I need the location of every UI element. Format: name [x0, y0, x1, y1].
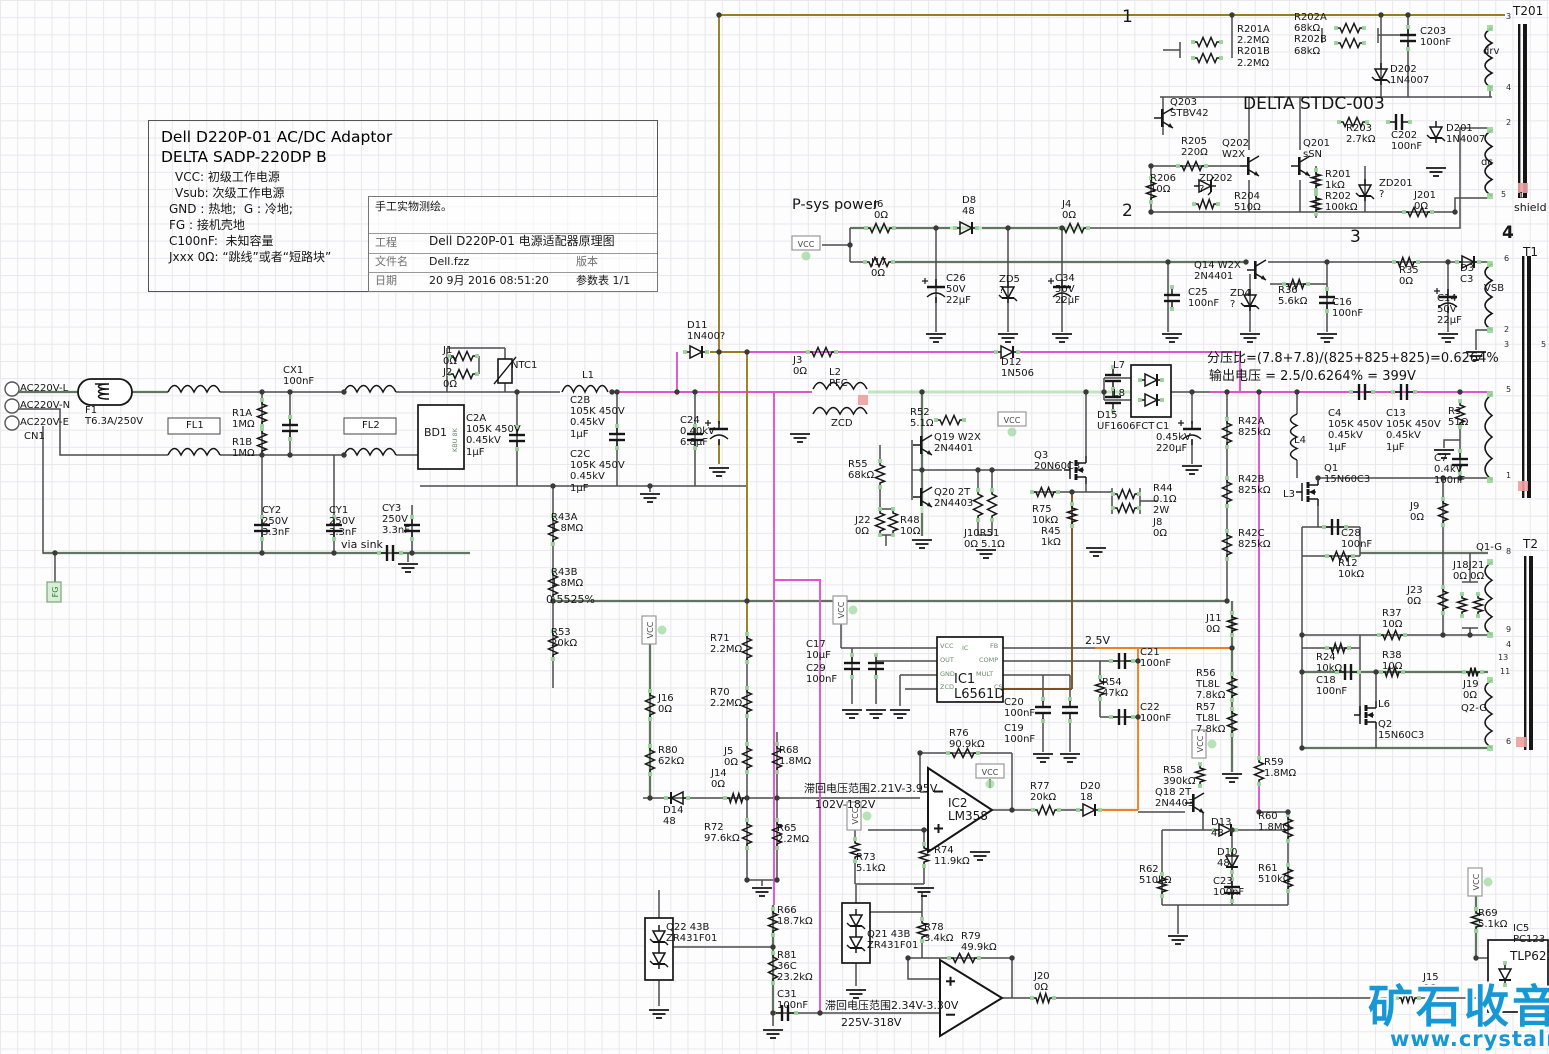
rh-symbol — [934, 416, 966, 425]
cv-symbol — [1035, 697, 1051, 723]
component-label: 4 — [1506, 84, 1511, 93]
component-label: R73 5.1kΩ — [856, 852, 885, 874]
component-label: C19 100nF — [1004, 723, 1035, 745]
component-label: COMP — [979, 657, 998, 664]
junction-dot — [409, 550, 414, 555]
component-label: CN1 — [24, 431, 45, 442]
component-label: 滞回电压范围2.21V-3.95V — [804, 783, 937, 795]
component-label: J11 0Ω — [1206, 613, 1222, 635]
component-label: P-sys power — [792, 197, 879, 213]
junction-dot — [1467, 632, 1472, 637]
junction-dot — [1373, 669, 1378, 674]
component-label: R206 10Ω — [1150, 173, 1176, 195]
component-label: R48 10Ω — [900, 515, 920, 537]
gnd-symbol — [914, 888, 934, 896]
component-label: D12 1N506 — [1001, 357, 1034, 379]
gnd-symbol — [1426, 168, 1446, 176]
component-label: CY1 250V 3.3nF — [329, 505, 357, 539]
component-label: C7 0.4kV 100nF — [1434, 453, 1465, 487]
junction-dot — [1243, 259, 1248, 264]
pin-pad — [1487, 193, 1493, 199]
component-label: VCC — [940, 643, 954, 650]
gnd-symbol — [912, 540, 932, 548]
component-label: 3 — [1350, 228, 1361, 247]
component-label: ZCD — [940, 684, 954, 691]
component-label: 9 — [1506, 626, 1511, 635]
pin-pad — [1487, 391, 1493, 397]
component-label: 13 — [1498, 654, 1508, 663]
component-label: R43A 1.8MΩ — [551, 512, 583, 534]
component-label: C13 105K 450V 0.45kV 1µF — [1386, 408, 1441, 453]
component-label: D20 18 — [1080, 781, 1100, 803]
rh-symbol — [1191, 54, 1223, 63]
circ-symbol — [5, 382, 19, 396]
info-note: GND : 热地; G : 冷地; — [169, 203, 293, 216]
junction-dot — [1445, 259, 1450, 264]
junction-dot — [933, 225, 938, 230]
component-label: J6 0Ω — [874, 199, 888, 221]
project-value: Dell D220P-01 电源适配器原理图 — [429, 235, 615, 248]
component-label: Q21 43B ZR431F01 — [867, 929, 918, 951]
component-label: 2 — [1506, 119, 1511, 128]
rv-symbol — [974, 488, 983, 522]
junction-dot — [744, 795, 749, 800]
npn-symbol — [913, 487, 932, 507]
title-block: 手工实物测绘。 工程 Dell D220P-01 电源适配器原理图 文件名 De… — [368, 196, 658, 292]
component-label: R58 390kΩ — [1163, 765, 1196, 787]
vccr-symbol: VCC — [642, 616, 667, 644]
component-label: 滞回电压范围2.34V-3.30V — [825, 1000, 958, 1012]
rv-symbol — [1196, 762, 1205, 788]
coilv-symbol — [1485, 394, 1492, 480]
schematic-page: VCCFGVCCVCCVCCVCCVCCVCCVCC Dell D220P-01… — [0, 0, 1549, 1054]
svg-text:VCC: VCC — [837, 601, 846, 618]
component-label: L1 — [582, 370, 594, 381]
component-label: 3 — [1506, 13, 1511, 22]
component-label: R81 36C 23.2kΩ — [777, 950, 813, 984]
vcc-symbol: VCC — [998, 412, 1026, 437]
fet-symbol — [1354, 701, 1376, 729]
component-label: Q20 2T 2N4403 — [934, 487, 973, 509]
watermark-brand: 矿石收音机 — [1368, 982, 1549, 1032]
junction-dot — [1224, 598, 1229, 603]
component-label: C2C 105K 450V 0.45kV 1µF — [570, 449, 625, 494]
junction-dot — [1101, 389, 1106, 394]
component-label: C20 100nF — [1004, 697, 1035, 719]
component-label: J201 0Ω — [1414, 190, 1436, 212]
gnd-symbol — [1438, 334, 1458, 342]
component-label: R203 2.7kΩ — [1346, 123, 1375, 145]
component-label: R62 510kΩ — [1139, 864, 1172, 886]
opamp-symbol — [940, 960, 1002, 1036]
rh-symbol — [1191, 38, 1223, 47]
component-label: J4 0Ω — [1062, 199, 1076, 221]
rh-symbol — [1334, 39, 1366, 48]
component-label: D202 1N4007 — [1390, 64, 1429, 86]
component-label: Q203 STBV42 — [1170, 97, 1209, 119]
junction-dot — [847, 242, 852, 247]
component-label: R205 220Ω — [1181, 136, 1208, 158]
vcc-symbol: VCC — [792, 236, 820, 261]
gnd-symbol — [1162, 334, 1182, 342]
fgb-symbol: FG — [47, 582, 61, 602]
component-label: Q201 sSN — [1303, 138, 1330, 160]
component-label: Q2 15N60C3 — [1378, 719, 1424, 741]
component-label: D3 C3 — [1460, 263, 1474, 285]
gnd-symbol — [1317, 334, 1337, 342]
component-label: ZCD — [831, 418, 853, 429]
reds-symbol — [1516, 737, 1526, 747]
component-label: R77 20kΩ — [1030, 781, 1056, 803]
component-label: Q202 W2X — [1222, 138, 1249, 160]
junction-dot — [1165, 259, 1170, 264]
junction-dot — [259, 389, 264, 394]
svg-text:VCC: VCC — [646, 621, 655, 638]
component-label: 5 — [1541, 341, 1546, 350]
component-label: R201 1kΩ — [1325, 169, 1351, 191]
date-label: 日期 — [375, 275, 397, 287]
pin-pad — [1487, 85, 1493, 91]
component-label: R12 10kΩ — [1338, 558, 1364, 580]
component-label: R202 100kΩ — [1325, 191, 1358, 213]
component-label: R204 510Ω — [1234, 191, 1261, 213]
junction-dot — [1229, 645, 1234, 650]
component-label: J16 0Ω — [658, 693, 674, 715]
junction-dot — [1148, 163, 1153, 168]
component-label: R53 20kΩ — [551, 627, 577, 649]
svg-text:VCC: VCC — [798, 240, 815, 249]
component-label: C1 0.45kV 220µF — [1156, 421, 1191, 455]
junction-dot — [259, 452, 264, 457]
junction-dot — [774, 877, 779, 882]
component-label: drv — [1483, 46, 1499, 57]
component-label: T1 — [1523, 246, 1538, 259]
component-label: T2 — [1523, 538, 1538, 551]
component-label: R45 1kΩ — [1041, 526, 1061, 548]
component-label: J14 0Ω — [711, 768, 727, 790]
component-label: 11 — [1500, 668, 1510, 677]
component-label: R201A 2.2MΩ R201B 2.2MΩ — [1237, 24, 1270, 69]
component-label: R60 1.8MΩ — [1258, 811, 1290, 833]
info-title-1: Dell D220P-01 AC/DC Adaptor — [161, 129, 392, 146]
component-label: IC5 PC123 — [1513, 923, 1545, 945]
title-block-note: 手工实物测绘。 — [375, 201, 452, 213]
gnd-symbol — [649, 1010, 669, 1018]
component-label: R66 18.7kΩ — [777, 905, 813, 927]
component-label: R71 2.2MΩ — [710, 633, 742, 655]
info-note: VCC: 初级工作电源 — [175, 171, 280, 184]
component-label: 2.5V — [1085, 635, 1110, 647]
info-note: FG : 接机壳地 — [169, 219, 245, 232]
component-label: C26 50V 22µF — [946, 273, 971, 307]
ch-symbol — [1386, 114, 1412, 130]
coilv-symbol — [1485, 562, 1492, 635]
component-label: R78 3.4kΩ — [924, 922, 953, 944]
pin-pad — [1487, 677, 1493, 683]
info-title-2: DELTA SADP-220DP B — [161, 149, 327, 166]
info-note: Jxxx 0Ω: “跳线”或者“短路块” — [169, 251, 331, 264]
pin-pad — [1487, 127, 1493, 133]
pin-pad — [1487, 745, 1493, 751]
gnd-symbol — [640, 494, 660, 502]
component-label: 分压比=(7.8+7.8)/(825+825+825)=0.6264% — [1207, 352, 1499, 367]
wire — [908, 958, 940, 979]
file-label: 文件名 — [375, 256, 408, 268]
component-label: 225V-318V — [841, 1017, 901, 1029]
watermark-url: www.crystalradio.cn — [1390, 1028, 1549, 1052]
component-label: R79 49.9kΩ — [961, 931, 997, 953]
component-label: C29 100nF — [806, 663, 837, 685]
component-label: 4 — [1502, 224, 1514, 243]
pin-pad — [1487, 261, 1493, 267]
junction-dot — [1299, 745, 1304, 750]
component-label: C21 100nF — [1140, 647, 1171, 669]
reds-symbol — [858, 395, 868, 405]
indh-symbol — [562, 386, 608, 393]
component-label: R42B 825kΩ — [1238, 474, 1271, 496]
gnd-symbol — [1222, 774, 1242, 782]
indh-symbol — [168, 386, 220, 393]
reds-symbol — [1518, 481, 1528, 491]
component-label: IC2 LM358 — [948, 797, 988, 824]
svg-text:VCC: VCC — [1196, 735, 1205, 752]
component-label: Q18 2T 2N4403 — [1155, 787, 1194, 809]
component-label: ZD5 ? — [999, 274, 1020, 296]
component-label: R69 5.1kΩ — [1478, 908, 1507, 930]
date-value: 20 9月 2016 08:51:20 — [429, 275, 549, 287]
project-label: 工程 — [375, 237, 397, 249]
component-label: D14 48 — [663, 805, 683, 827]
component-label: 2 — [1122, 202, 1133, 221]
component-label: AC220V-L — [20, 383, 68, 394]
gnd-symbol — [970, 852, 990, 860]
gnd-symbol — [1168, 936, 1188, 944]
gnd-symbol — [1052, 334, 1072, 342]
component-label: 5 — [1501, 191, 1506, 200]
junction-dot — [514, 389, 519, 394]
gnd-symbol — [998, 334, 1018, 342]
junction-dot — [919, 467, 924, 472]
component-label: D15 UF1606FCT — [1097, 410, 1154, 432]
junction-dot — [1440, 632, 1445, 637]
component-label: J3 0Ω — [793, 355, 807, 377]
junction-dot — [744, 877, 749, 882]
component-label: 6 — [1504, 255, 1509, 264]
component-label: Q1 15N60C3 — [1324, 463, 1370, 485]
junction-dot — [716, 12, 721, 17]
rh-symbol — [1334, 24, 1366, 33]
component-label: R36 5.6kΩ — [1278, 285, 1307, 307]
component-label: R54 47kΩ — [1102, 677, 1128, 699]
gnd-symbol — [1240, 334, 1260, 342]
component-label: KBU 8K — [452, 428, 459, 452]
component-label: CX1 100nF — [283, 365, 314, 387]
component-label: shield — [1514, 202, 1547, 214]
junction-dot — [1299, 632, 1304, 637]
component-label: AC220V-E — [20, 417, 69, 428]
junction-dot — [921, 827, 926, 832]
component-label: C23 100nF — [1213, 876, 1244, 898]
junction-dot — [1405, 12, 1410, 17]
junction-dot — [1189, 389, 1194, 394]
component-label: C34 50V 22µF — [1055, 273, 1080, 307]
core-symbol — [1518, 24, 1527, 198]
vccr-symbol: VCC — [1468, 868, 1493, 896]
component-label: J17 0Ω — [871, 257, 887, 279]
junction-dot — [1224, 389, 1229, 394]
junction-dot — [716, 349, 721, 354]
junction-dot — [287, 452, 292, 457]
component-label: AC220V-N — [20, 400, 70, 411]
component-label: TLP621 — [1510, 950, 1549, 963]
gnd-symbol — [890, 710, 910, 718]
component-label: R43B 1.8MΩ — [551, 567, 583, 589]
component-label: R202A 68kΩ R202B 68kΩ — [1294, 12, 1327, 57]
junction-dot — [905, 955, 910, 960]
component-label: 1 — [1506, 472, 1511, 481]
indh-symbol — [344, 386, 396, 393]
component-label: L8 — [1113, 388, 1125, 399]
pin-pad — [1487, 25, 1493, 31]
junction-dot — [1005, 225, 1010, 230]
rh-symbol — [1111, 504, 1141, 513]
svg-text:VCC: VCC — [982, 768, 999, 777]
core-symbol — [1524, 556, 1533, 750]
junction-dot — [259, 550, 264, 555]
component-label: R1A 1MΩ — [232, 408, 255, 430]
component-label: L2 PFC — [829, 367, 848, 389]
component-label: R37 10Ω — [1382, 608, 1402, 630]
junction-dot — [647, 483, 652, 488]
junction-dot — [1083, 389, 1088, 394]
junction-dot — [770, 944, 775, 949]
component-label: 输出电压 = 2.5/0.6264% = 399V — [1209, 370, 1416, 385]
component-label: 0.5525% — [546, 594, 595, 606]
component-label: C14 50V 22µF — [1437, 293, 1462, 327]
junction-dot — [1069, 489, 1074, 494]
wire — [1476, 330, 1488, 350]
junction-dot — [917, 750, 922, 755]
pin-pad — [1487, 327, 1493, 333]
component-label: FL1 — [186, 420, 204, 431]
gnd-symbol — [866, 710, 886, 718]
junction-dot — [1473, 955, 1478, 960]
component-label: Q3 20N60C3 — [1034, 450, 1080, 472]
junction-dot — [817, 1010, 822, 1015]
component-label: R70 2.2MΩ — [710, 687, 742, 709]
component-label: J18J21 0Ω 0Ω — [1453, 560, 1484, 582]
rv-symbol — [889, 507, 898, 537]
junction-dot — [341, 452, 346, 457]
gnd-symbol — [1033, 754, 1053, 762]
component-label: R38 10Ω — [1382, 650, 1402, 672]
component-label: D10 48 — [1217, 847, 1237, 869]
component-label: J19 0Ω — [1463, 679, 1479, 701]
component-label: R75 10kΩ — [1032, 504, 1058, 526]
component-label: 2 — [1504, 326, 1509, 335]
component-label: L7 — [1113, 360, 1125, 371]
gnd-symbol — [1060, 754, 1080, 762]
gnd-symbol — [763, 1030, 783, 1038]
component-label: Q22 43B ZR431F01 — [666, 922, 717, 944]
junction-dot — [1315, 475, 1320, 480]
component-label: D13 48 — [1211, 817, 1231, 839]
junction-dot — [341, 389, 346, 394]
component-label: 5 — [1506, 386, 1511, 395]
component-label: R57 TL8L 7.8kΩ — [1196, 702, 1225, 736]
sheet-value: 参数表 1/1 — [576, 275, 630, 287]
component-label: J23 0Ω — [1407, 585, 1423, 607]
rh-symbol — [1031, 806, 1061, 815]
junction-dot — [770, 1010, 775, 1015]
component-label: R76 90.9kΩ — [949, 728, 985, 750]
component-label: C17 10µF — [806, 639, 831, 661]
component-label: ZD4 ? — [1230, 288, 1251, 310]
rv-symbol — [1458, 592, 1467, 618]
circ-symbol — [5, 416, 19, 430]
component-label: R52 5.1Ω — [910, 407, 934, 429]
component-label: T201 — [1513, 5, 1543, 18]
component-label: C24 0.40kV 6.8µF — [680, 415, 715, 449]
component-label: C2B 105K 450V 0.45kV 1µF — [570, 395, 625, 440]
junction-dot — [331, 550, 336, 555]
cv-symbol — [1062, 697, 1078, 723]
gnd-symbol — [1182, 466, 1202, 474]
rh-symbol — [1192, 200, 1220, 209]
gnd-symbol — [1086, 548, 1106, 556]
npn-symbol — [913, 435, 932, 455]
component-label: J1 0Ω J2 0Ω — [443, 345, 457, 390]
component-label: BD1 — [424, 427, 447, 439]
component-label: via sink — [341, 539, 383, 551]
component-label: 1 — [1122, 8, 1133, 27]
coilv-symbol — [1485, 28, 1492, 88]
component-label: Q14 W2X 2N4401 — [1194, 260, 1241, 282]
component-label: R35 0Ω — [1399, 265, 1419, 287]
component-label: C203 100nF — [1420, 26, 1451, 48]
gnd-symbol — [709, 468, 729, 476]
junction-dot — [1457, 389, 1462, 394]
junction-dot — [774, 795, 779, 800]
junction-dot — [1009, 955, 1014, 960]
junction-dot — [1299, 669, 1304, 674]
component-label: J5 0Ω — [724, 746, 738, 768]
junction-dot — [1059, 225, 1064, 230]
info-note: C100nF: 未知容量 — [169, 235, 274, 248]
junction-dot — [989, 467, 994, 472]
junction-dot — [1148, 209, 1153, 214]
junction-dot — [1229, 12, 1234, 17]
component-label: C18 100nF — [1316, 675, 1347, 697]
rv-symbol — [876, 459, 885, 489]
component-label: J9 0Ω — [1410, 501, 1424, 523]
junction-dot — [1324, 259, 1329, 264]
junction-dot — [287, 389, 292, 394]
component-label: 6 — [1506, 738, 1511, 747]
indh-symbol — [344, 449, 396, 456]
component-label: R44 0.1Ω 2W J8 0Ω — [1153, 483, 1177, 539]
component-label: R68 1.8MΩ — [779, 745, 811, 767]
component-label: L4 — [1294, 435, 1306, 446]
component-label: L6 — [1378, 699, 1390, 710]
svg-text:VCC: VCC — [1472, 873, 1481, 890]
component-label: R65 2.2MΩ — [777, 823, 809, 845]
indh-symbol — [813, 408, 867, 415]
rh-symbol — [1111, 490, 1141, 499]
junction-dot — [919, 389, 924, 394]
component-label: J22 0Ω — [855, 515, 871, 537]
component-label: C31 100nF — [777, 989, 808, 1011]
